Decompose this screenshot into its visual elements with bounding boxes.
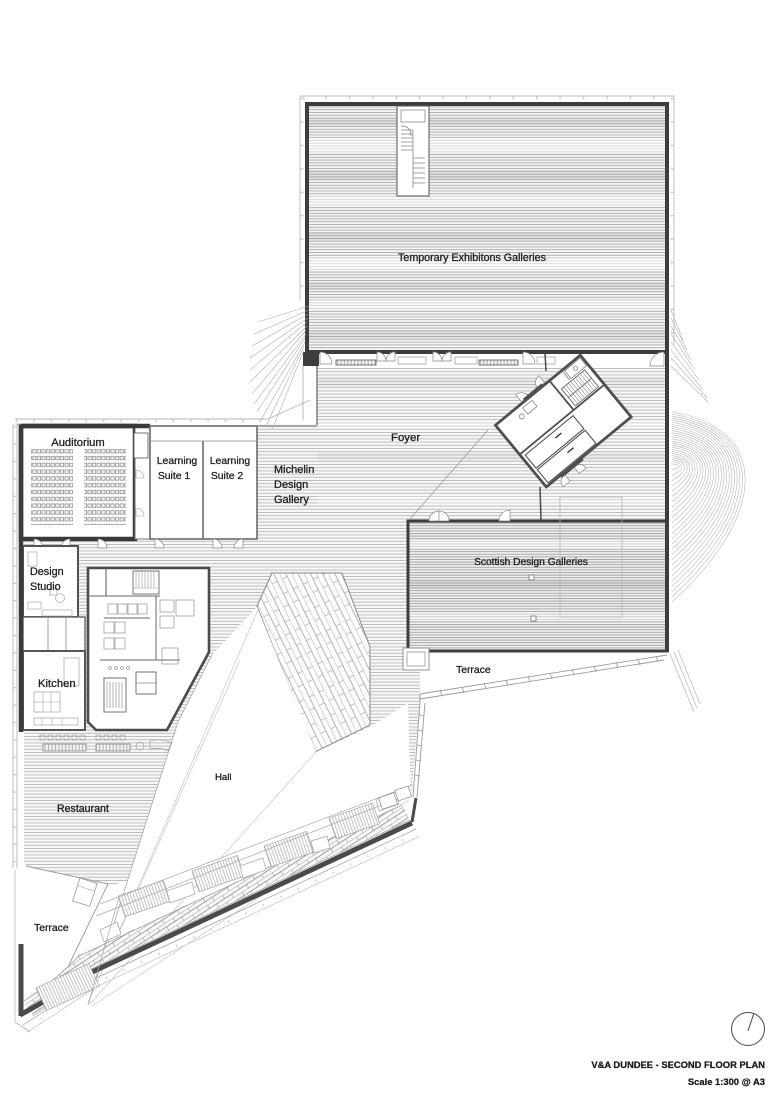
svg-text:Restaurant: Restaurant	[57, 803, 109, 815]
svg-text:V&A DUNDEE - SECOND FLOOR PLAN: V&A DUNDEE - SECOND FLOOR PLAN	[591, 1059, 765, 1070]
svg-text:Scottish Design Galleries: Scottish Design Galleries	[474, 557, 588, 568]
svg-text:Kitchen: Kitchen	[38, 678, 76, 690]
svg-text:Suite 2: Suite 2	[211, 471, 244, 482]
svg-text:Studio: Studio	[30, 581, 61, 593]
svg-text:Scale 1:300 @ A3: Scale 1:300 @ A3	[688, 1076, 765, 1087]
svg-text:Learning: Learning	[157, 456, 198, 467]
svg-text:Hall: Hall	[215, 772, 232, 783]
svg-text:Design: Design	[274, 479, 308, 491]
svg-text:Foyer: Foyer	[391, 432, 420, 444]
svg-text:Temporary Exhibitons Galleries: Temporary Exhibitons Galleries	[398, 252, 546, 264]
svg-text:Terrace: Terrace	[456, 665, 491, 676]
svg-text:Design: Design	[30, 566, 64, 578]
svg-text:Terrace: Terrace	[34, 923, 69, 934]
svg-text:Gallery: Gallery	[274, 494, 309, 506]
svg-text:Suite 1: Suite 1	[158, 471, 191, 482]
svg-text:Auditorium: Auditorium	[51, 437, 104, 449]
svg-text:Michelin: Michelin	[274, 464, 314, 476]
svg-text:Learning: Learning	[210, 456, 251, 467]
